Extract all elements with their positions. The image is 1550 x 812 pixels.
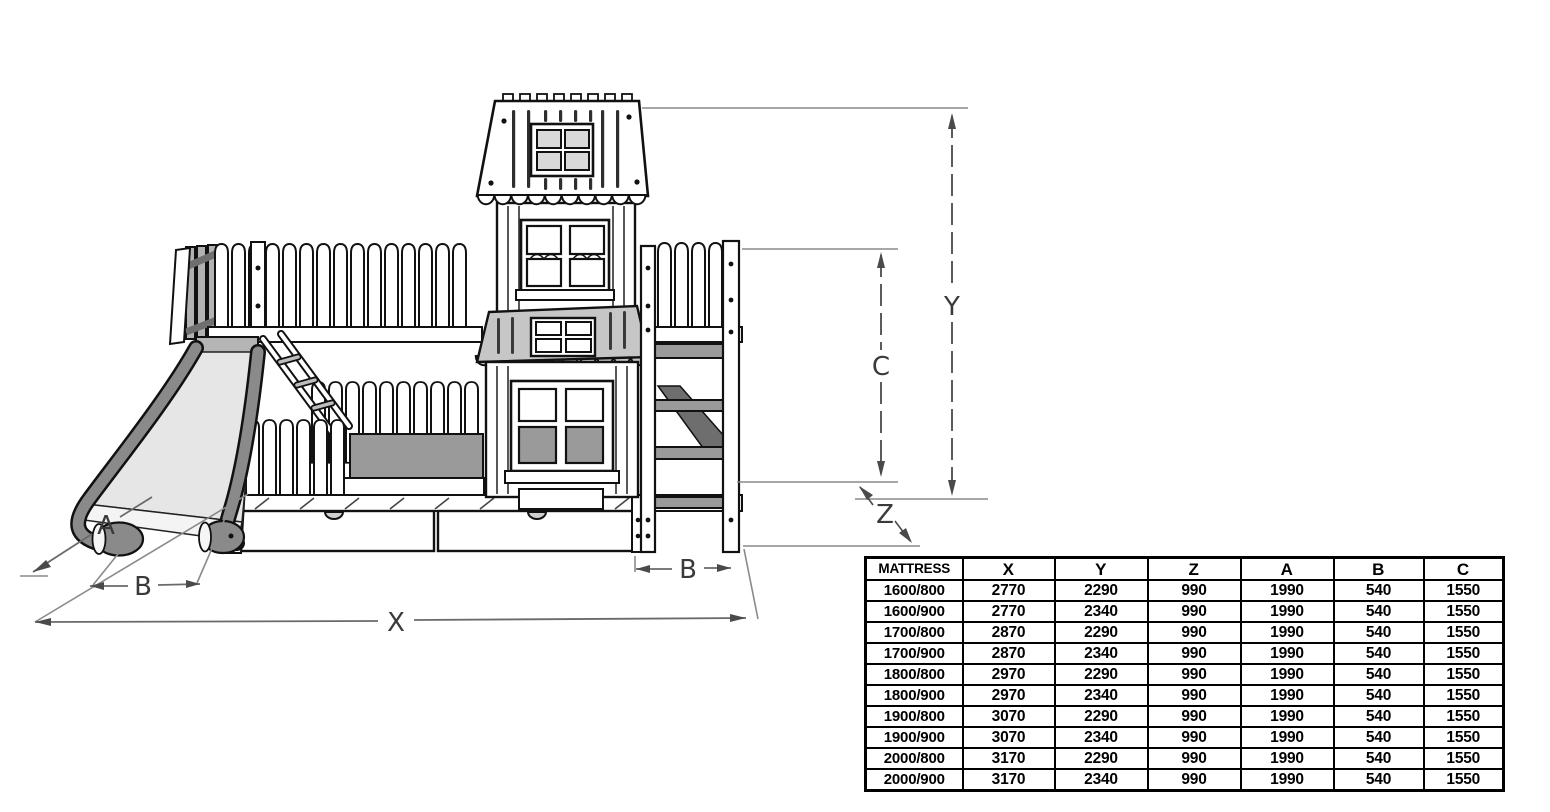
table-cell: 1700/900 (866, 643, 963, 664)
table-cell: 2340 (1055, 685, 1148, 706)
table-cell: 1550 (1424, 727, 1504, 748)
table-cell: 2770 (963, 601, 1055, 622)
table-cell: 1990 (1241, 601, 1334, 622)
table-row: 1900/9003070234099019905401550 (866, 727, 1504, 748)
dim-label-z: Z (876, 500, 894, 530)
table-cell: 540 (1334, 685, 1424, 706)
table-header-cell: Z (1148, 558, 1241, 581)
dim-label-a: A (97, 511, 115, 541)
table-cell: 540 (1334, 580, 1424, 601)
table-cell: 3170 (963, 769, 1055, 791)
table-cell: 990 (1148, 622, 1241, 643)
table-cell: 2290 (1055, 748, 1148, 769)
stair-stringer (658, 386, 724, 452)
table-cell: 2290 (1055, 706, 1148, 727)
table-cell: 1800/800 (866, 664, 963, 685)
table-cell: 990 (1148, 580, 1241, 601)
table-cell: 2870 (963, 643, 1055, 664)
table-row: 1700/9002870234099019905401550 (866, 643, 1504, 664)
table-cell: 1990 (1241, 727, 1334, 748)
table-cell: 1990 (1241, 769, 1334, 791)
table-row: 1600/9002770234099019905401550 (866, 601, 1504, 622)
table-cell: 1550 (1424, 748, 1504, 769)
table-cell: 540 (1334, 748, 1424, 769)
dim-label-c: C (872, 352, 890, 382)
stair-post-right (723, 241, 739, 552)
table-cell: 540 (1334, 727, 1424, 748)
table-cell: 1550 (1424, 685, 1504, 706)
table-cell: 1550 (1424, 643, 1504, 664)
table-cell: 2970 (963, 664, 1055, 685)
table-cell: 1900/800 (866, 706, 963, 727)
table-cell: 990 (1148, 706, 1241, 727)
table-header-row: MATTRESS X Y Z A B C (866, 558, 1504, 581)
upper-fence-right (658, 243, 722, 338)
stair-tread[interactable] (655, 344, 723, 358)
table-cell: 990 (1148, 685, 1241, 706)
dim-label-b-right: B (679, 555, 697, 585)
lower-bunk-front-board (344, 478, 484, 495)
table-cell: 2340 (1055, 601, 1148, 622)
lower-bunk-back-panel (350, 434, 483, 480)
table-cell: 990 (1148, 769, 1241, 791)
table-cell: 990 (1148, 643, 1241, 664)
table-cell: 1990 (1241, 643, 1334, 664)
table-cell: 1900/900 (866, 727, 963, 748)
table-cell: 2290 (1055, 664, 1148, 685)
stairs (641, 241, 739, 552)
table-cell: 1990 (1241, 580, 1334, 601)
table-cell: 3070 (963, 706, 1055, 727)
table-cell: 1990 (1241, 748, 1334, 769)
table-row: 1700/8002870229099019905401550 (866, 622, 1504, 643)
table-cell: 2340 (1055, 643, 1148, 664)
table-row: 2000/9003170234099019905401550 (866, 769, 1504, 791)
table-cell: 1600/900 (866, 601, 963, 622)
table-cell: 1700/800 (866, 622, 963, 643)
table-cell: 2290 (1055, 580, 1148, 601)
table-cell: 2000/800 (866, 748, 963, 769)
table-cell: 540 (1334, 601, 1424, 622)
table-cell: 3070 (963, 727, 1055, 748)
table-header-cell: MATTRESS (866, 558, 963, 581)
table-body: 1600/80027702290990199054015501600/90027… (866, 580, 1504, 791)
table-cell: 1990 (1241, 685, 1334, 706)
playhouse-tower (476, 94, 649, 509)
table-cell: 1550 (1424, 769, 1504, 791)
table-header-cell: Y (1055, 558, 1148, 581)
table-cell: 540 (1334, 706, 1424, 727)
table-cell: 1550 (1424, 706, 1504, 727)
table-cell: 990 (1148, 748, 1241, 769)
tower-roof (477, 94, 648, 204)
table-cell: 1800/900 (866, 685, 963, 706)
table-cell: 1600/800 (866, 580, 963, 601)
dim-label-x: X (387, 608, 405, 638)
table-cell: 2770 (963, 580, 1055, 601)
table-cell: 2290 (1055, 622, 1148, 643)
table-cell: 1990 (1241, 706, 1334, 727)
table-cell: 990 (1148, 664, 1241, 685)
table-cell: 990 (1148, 601, 1241, 622)
table-cell: 540 (1334, 622, 1424, 643)
table-header-cell: B (1334, 558, 1424, 581)
dimensions-table: MATTRESS X Y Z A B C 1600/80027702290990… (864, 556, 1505, 792)
lower-house-wall (486, 362, 638, 509)
awning-roof (476, 306, 649, 365)
dim-label-b-left: B (134, 572, 152, 602)
table-row: 1600/8002770229099019905401550 (866, 580, 1504, 601)
table-header-cell: X (963, 558, 1055, 581)
table-cell: 540 (1334, 643, 1424, 664)
table-cell: 2870 (963, 622, 1055, 643)
table-cell: 3170 (963, 748, 1055, 769)
table-cell: 1550 (1424, 664, 1504, 685)
table-row: 2000/8003170229099019905401550 (866, 748, 1504, 769)
table-header-cell: A (1241, 558, 1334, 581)
table-cell: 540 (1334, 769, 1424, 791)
table-row: 1800/8002970229099019905401550 (866, 664, 1504, 685)
drawer-handle[interactable] (325, 512, 343, 519)
stair-post-left (641, 246, 655, 552)
table-cell: 1550 (1424, 622, 1504, 643)
stair-tread[interactable] (655, 447, 723, 459)
drawing-canvas: X B B A Y C Z MATTRESS X Y Z A B C 1600/… (0, 0, 1550, 812)
table-cell: 540 (1334, 664, 1424, 685)
table-cell: 2970 (963, 685, 1055, 706)
table-cell: 990 (1148, 727, 1241, 748)
table-cell: 1550 (1424, 580, 1504, 601)
table-header-cell: C (1424, 558, 1504, 581)
table-cell: 2340 (1055, 727, 1148, 748)
table-cell: 2340 (1055, 769, 1148, 791)
stair-tread[interactable] (655, 497, 723, 508)
dim-label-y: Y (943, 292, 960, 322)
drawer-handle[interactable] (528, 512, 546, 519)
stair-tread[interactable] (655, 400, 723, 411)
table-cell: 1550 (1424, 601, 1504, 622)
table-cell: 2000/900 (866, 769, 963, 791)
table-row: 1800/9002970234099019905401550 (866, 685, 1504, 706)
table-cell: 1990 (1241, 664, 1334, 685)
table-row: 1900/8003070229099019905401550 (866, 706, 1504, 727)
table-cell: 1990 (1241, 622, 1334, 643)
